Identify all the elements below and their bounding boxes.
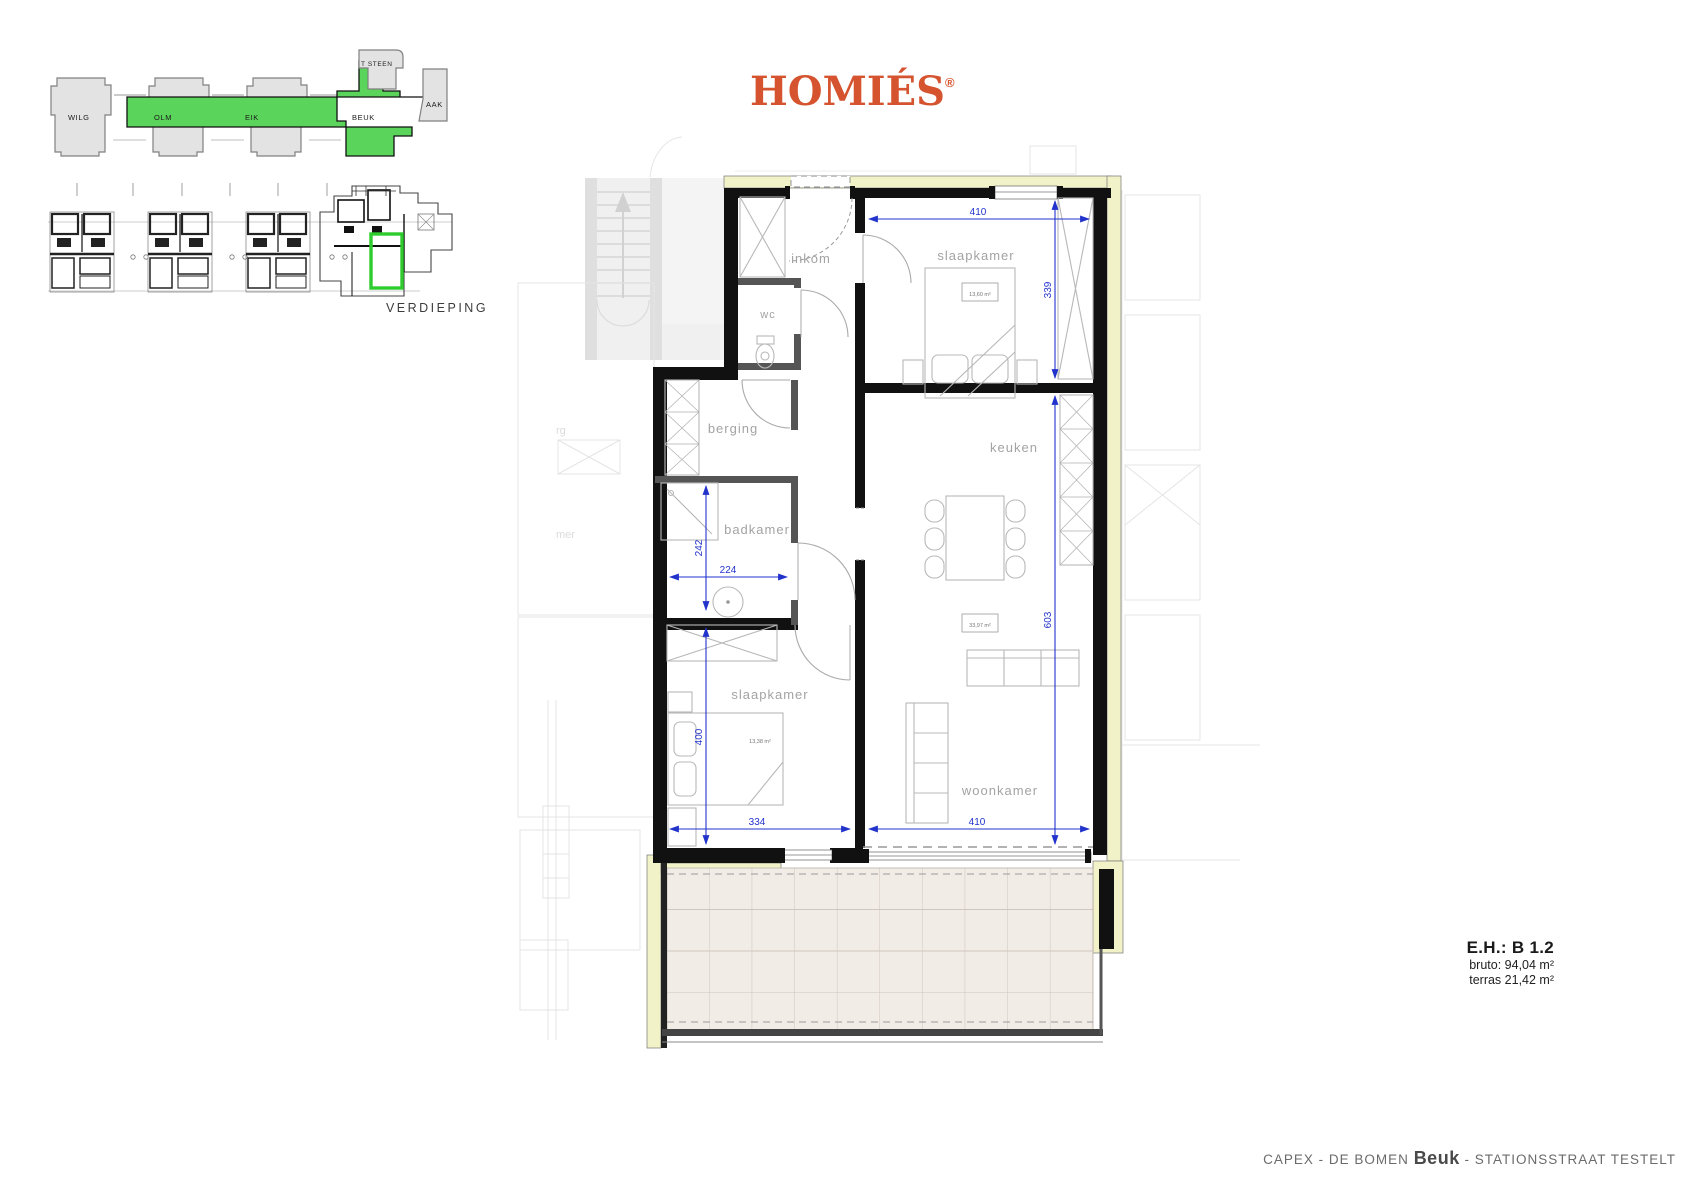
dim-410-bottom: 410 bbox=[969, 817, 986, 828]
dim-339: 339 bbox=[1043, 281, 1054, 298]
unit-info: E.H.: B 1.2 bruto: 94,04 m² terras 21,42… bbox=[1467, 938, 1554, 988]
building-label-eik: EIK bbox=[245, 113, 259, 122]
terrace bbox=[661, 855, 1114, 1048]
tv-cabinet bbox=[967, 650, 1079, 686]
floor-overview-label: VERDIEPING bbox=[386, 301, 488, 315]
room-label-inkom: inkom bbox=[791, 251, 831, 266]
site-key-plan: WILG OLM EIK BEUK T STEEN AAK bbox=[51, 50, 447, 156]
berging-closet bbox=[665, 380, 699, 475]
room-label-slaapkamer-1: slaapkamer bbox=[937, 248, 1014, 263]
unit-highlight bbox=[371, 234, 402, 288]
building-label-beuk: BEUK bbox=[352, 113, 375, 122]
room-label-woonkamer: woonkamer bbox=[961, 783, 1038, 798]
area-label-slaapkamer-1: 13,60 m² bbox=[969, 292, 991, 298]
area-label-woonkamer: 33,97 m² bbox=[969, 623, 991, 629]
unit-bruto: bruto: 94,04 m² bbox=[1467, 958, 1554, 973]
room-labels: inkom wc berging badkamer slaapkamer sla… bbox=[708, 248, 1038, 798]
dimension-labels: 410 339 603 242 224 400 334 410 bbox=[694, 207, 1054, 828]
sofa bbox=[906, 703, 948, 823]
dim-334: 334 bbox=[749, 817, 766, 828]
footer-building: Beuk bbox=[1414, 1148, 1460, 1168]
dim-224: 224 bbox=[720, 565, 737, 576]
floor-strip-plan: VERDIEPING bbox=[48, 183, 488, 315]
shower bbox=[661, 483, 718, 540]
building-aak bbox=[419, 69, 447, 121]
dim-410-top: 410 bbox=[970, 207, 987, 218]
unit-code: E.H.: B 1.2 bbox=[1467, 938, 1554, 958]
room-label-slaapkamer-2: slaapkamer bbox=[731, 687, 808, 702]
room-label-keuken: keuken bbox=[990, 440, 1038, 455]
building-label-wilg: WILG bbox=[68, 113, 90, 122]
area-label-slaapkamer-2: 13,38 m² bbox=[749, 739, 771, 745]
drawing-canvas: WILG OLM EIK BEUK T STEEN AAK VERDIEPING bbox=[0, 0, 1702, 1203]
registered-mark: ® bbox=[945, 75, 955, 90]
footer: CAPEX - DE BOMEN Beuk - STATIONSSTRAAT T… bbox=[1263, 1148, 1676, 1169]
building-label-olm: OLM bbox=[154, 113, 172, 122]
page: WILG OLM EIK BEUK T STEEN AAK VERDIEPING bbox=[0, 0, 1702, 1203]
dim-603: 603 bbox=[1043, 611, 1054, 628]
terrace-pillar bbox=[1099, 869, 1114, 949]
brand-logo: HOMIÉS® bbox=[750, 68, 955, 115]
unit-terras: terras 21,42 m² bbox=[1467, 973, 1554, 988]
footer-suffix: - STATIONSSTRAAT TESTELT bbox=[1464, 1152, 1676, 1167]
building-label-aak: AAK bbox=[426, 100, 443, 109]
svg-text:rg: rg bbox=[556, 425, 566, 437]
room-label-berging: berging bbox=[708, 421, 758, 436]
brand-name: HOMIÉS bbox=[750, 68, 945, 115]
bed-2 bbox=[668, 692, 783, 846]
room-label-wc: wc bbox=[759, 309, 775, 321]
strip-right-block bbox=[320, 186, 452, 296]
svg-text:mer: mer bbox=[556, 529, 575, 541]
building-label-tsteen: T STEEN bbox=[361, 61, 393, 68]
dim-400: 400 bbox=[694, 728, 705, 745]
footer-project: CAPEX - DE BOMEN bbox=[1263, 1152, 1409, 1167]
dining-table bbox=[925, 496, 1025, 580]
room-label-badkamer: badkamer bbox=[724, 522, 790, 537]
dim-242: 242 bbox=[694, 539, 705, 556]
